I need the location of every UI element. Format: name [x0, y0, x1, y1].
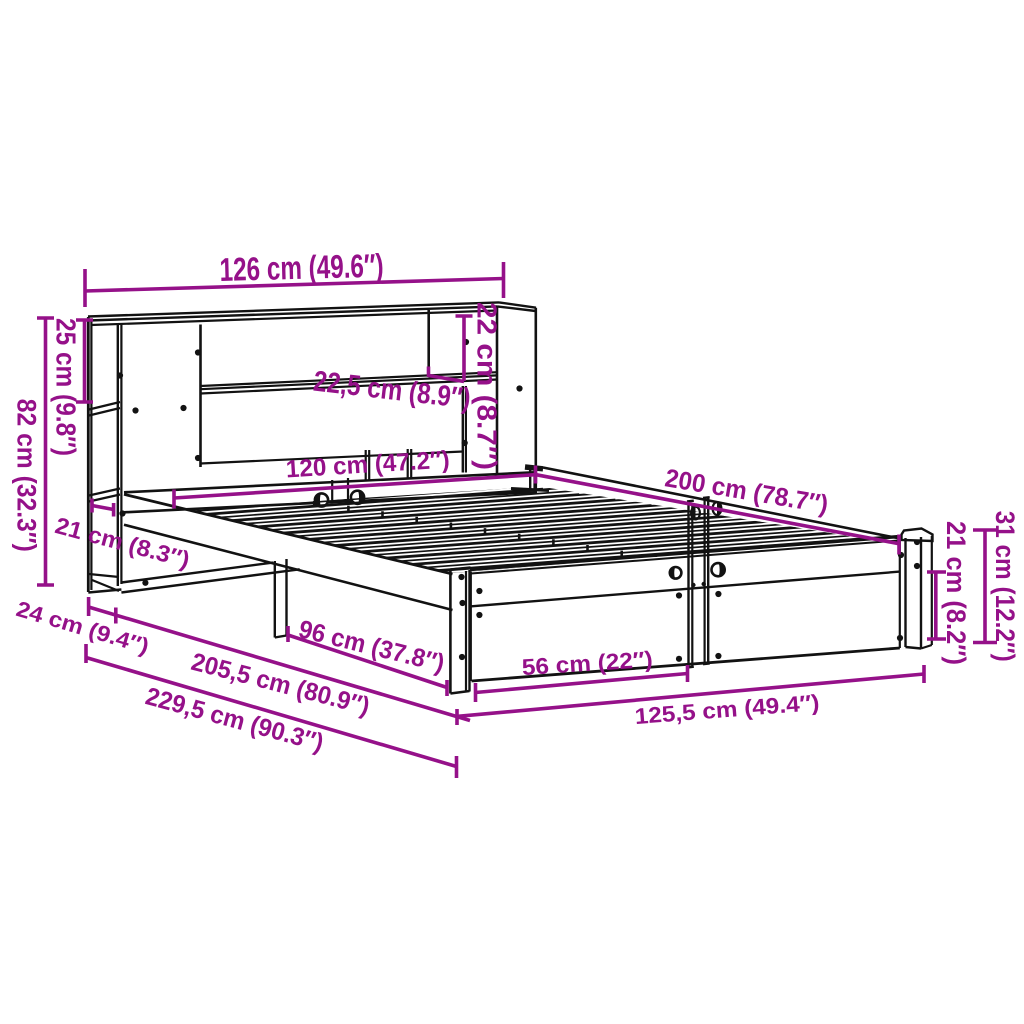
svg-text:22 cm (8.7″): 22 cm (8.7″): [471, 302, 502, 470]
svg-text:126 cm (49.6″): 126 cm (49.6″): [219, 247, 384, 288]
svg-text:31 cm (12.2″): 31 cm (12.2″): [990, 511, 1020, 662]
svg-text:82 cm (32.3″): 82 cm (32.3″): [12, 399, 42, 552]
svg-text:25 cm (9.8″): 25 cm (9.8″): [51, 318, 82, 456]
svg-text:21 cm (8.2″): 21 cm (8.2″): [941, 521, 971, 665]
